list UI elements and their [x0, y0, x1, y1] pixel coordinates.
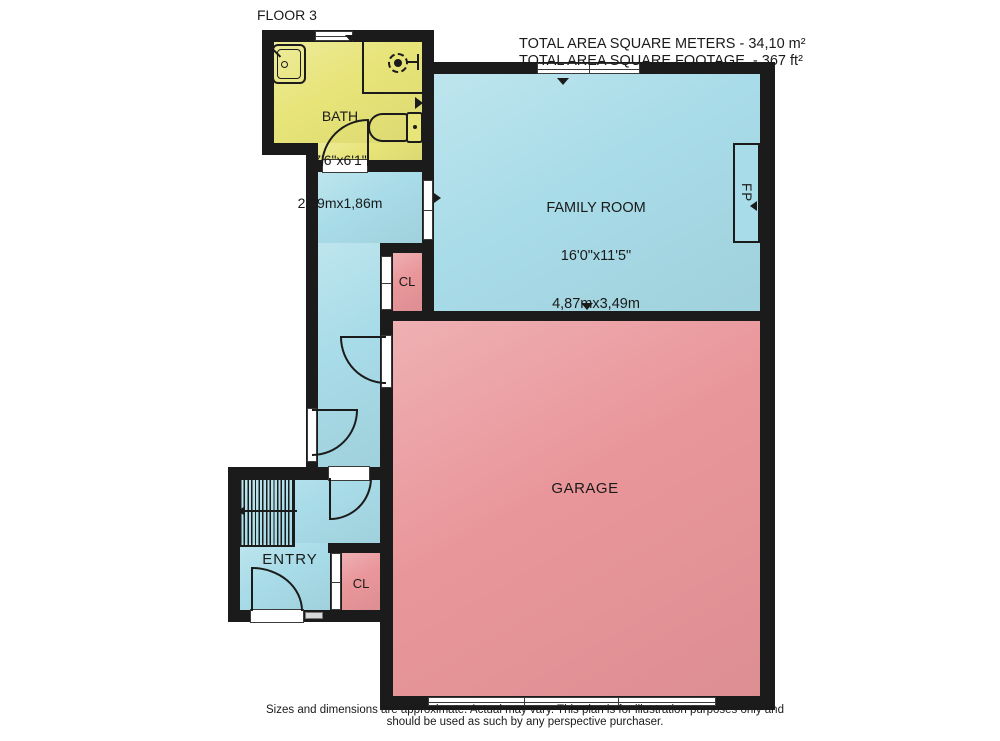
hall-garage-door-leaf: [340, 336, 386, 338]
family-room-dimensions-m: 4,87mx3,49m: [496, 296, 696, 312]
shower-handle: [417, 54, 419, 70]
family-room-dimensions-ft: 16'0"x11'5": [496, 248, 696, 264]
floor-title: FLOOR 3: [257, 7, 317, 23]
front-door-step: [305, 612, 323, 619]
family-room-label-block: FAMILY ROOM 16'0"x11'5" 4,87mx3,49m: [496, 168, 696, 344]
disclaimer-line1: Sizes and dimensions are approximate. Ac…: [150, 704, 900, 716]
family-room-name: FAMILY ROOM: [496, 200, 696, 216]
wall-right: [760, 62, 775, 710]
bath-right-wall-marker: [415, 97, 423, 109]
family-window-marker: [557, 78, 569, 85]
bath-dimensions-ft: 7'6"x6'1": [264, 153, 416, 168]
family-door-marker: [434, 193, 441, 203]
stairs-direction-line: [244, 510, 297, 512]
front-door-opening: [250, 609, 304, 623]
hall-entry-door-leaf: [329, 478, 331, 520]
garage-room: [393, 321, 760, 696]
disclaimer-line2: should be used as such by any perspectiv…: [150, 716, 900, 728]
shower-head-center: [394, 59, 402, 67]
fireplace-marker: [750, 201, 757, 211]
front-door-leaf: [251, 567, 253, 611]
wall-closet-upper-top: [380, 243, 434, 253]
fireplace-box: FP: [733, 143, 760, 243]
sink-drain: [281, 61, 288, 68]
stairs: [238, 477, 295, 547]
total-area-meters: TOTAL AREA SQUARE METERS - 34,10 m²: [519, 36, 806, 52]
stairs-direction-arrow: [238, 506, 245, 516]
fireplace-label: FP: [739, 183, 754, 202]
closet-upper-label: CL: [392, 274, 422, 289]
bath-name: BATH: [264, 109, 416, 124]
bath-window-marker: [345, 35, 357, 42]
bath-dimensions-m: 2,29mx1,86m: [264, 196, 416, 211]
hall-exterior-door-leaf: [312, 409, 358, 411]
family-door: [423, 180, 433, 240]
closet-lower-label: CL: [342, 576, 380, 591]
total-area-footage: TOTAL AREA SQUARE FOOTAGE - 367 ft²: [519, 53, 803, 69]
garage-label: GARAGE: [535, 480, 635, 497]
entry-label: ENTRY: [239, 551, 341, 568]
closet-upper-door: [381, 256, 392, 310]
floor-plan: FP FLOOR 3 TOTAL AREA SQUARE METERS - 34…: [0, 0, 1000, 741]
bath-label-block: BATH 7'6"x6'1" 2,29mx1,86m: [264, 80, 416, 240]
